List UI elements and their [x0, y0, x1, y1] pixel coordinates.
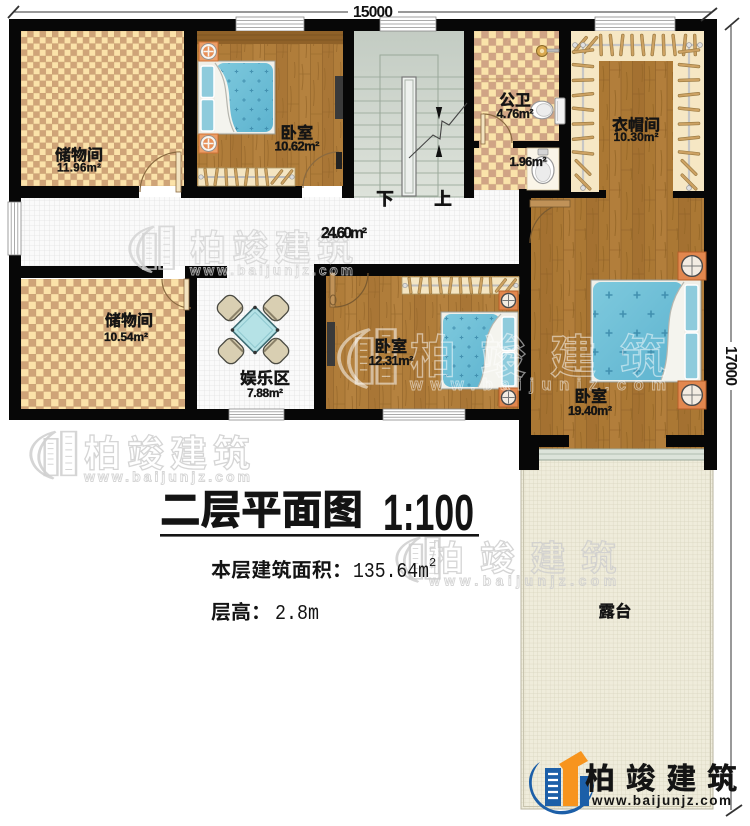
- svg-text:17000: 17000: [722, 346, 739, 386]
- svg-text:1:100: 1:100: [383, 484, 474, 541]
- svg-text:11.96m²: 11.96m²: [57, 163, 101, 175]
- svg-text:下: 下: [376, 185, 394, 211]
- svg-text:7.88m²: 7.88m²: [247, 386, 283, 400]
- svg-text:135.64m: 135.64m: [353, 561, 429, 584]
- svg-text:二层平面图: 二层平面图: [160, 477, 363, 536]
- svg-text:19.40m²: 19.40m²: [568, 404, 612, 418]
- svg-text:4.76m²: 4.76m²: [497, 107, 534, 121]
- svg-text:15000: 15000: [353, 4, 393, 21]
- svg-text:10.62m²: 10.62m²: [275, 138, 321, 153]
- svg-text:2: 2: [429, 556, 436, 570]
- svg-text:24.60m²: 24.60m²: [321, 225, 367, 242]
- svg-text:上: 上: [434, 185, 452, 211]
- svg-text:层高：: 层高：: [211, 596, 271, 625]
- svg-text:储物间: 储物间: [105, 307, 153, 331]
- svg-text:本层建筑面积：: 本层建筑面积：: [211, 554, 352, 583]
- svg-text:2.8m: 2.8m: [275, 603, 319, 626]
- svg-text:露台: 露台: [599, 598, 632, 622]
- svg-text:10.54m²: 10.54m²: [104, 330, 148, 344]
- svg-text:10.30m²: 10.30m²: [614, 130, 659, 144]
- svg-text:12.31m²: 12.31m²: [369, 353, 415, 368]
- svg-text:1.96m²: 1.96m²: [510, 155, 547, 169]
